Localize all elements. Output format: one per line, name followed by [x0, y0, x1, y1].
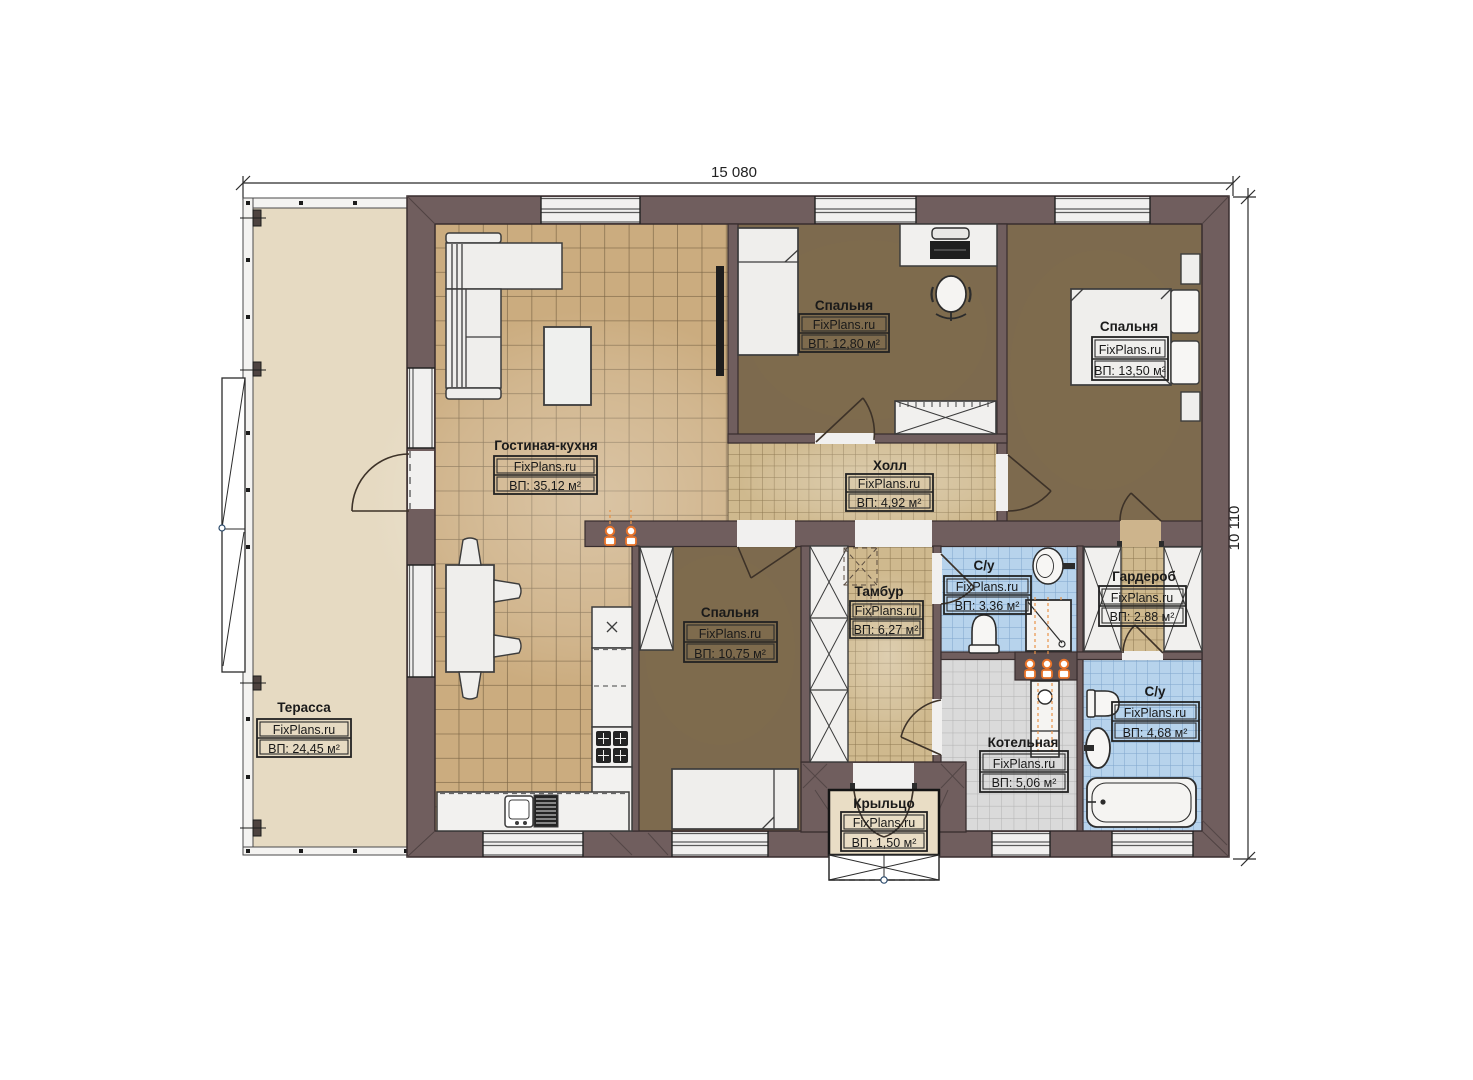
svg-text:ВП: 4,68 м²: ВП: 4,68 м² — [1123, 726, 1188, 740]
svg-text:FixPlans.ru: FixPlans.ru — [1124, 706, 1187, 720]
svg-text:FixPlans.ru: FixPlans.ru — [855, 604, 918, 618]
svg-text:FixPlans.ru: FixPlans.ru — [956, 580, 1019, 594]
svg-text:15 080: 15 080 — [711, 164, 757, 181]
svg-text:FixPlans.ru: FixPlans.ru — [699, 627, 762, 641]
svg-text:Спальня: Спальня — [701, 605, 759, 620]
svg-text:FixPlans.ru: FixPlans.ru — [273, 723, 336, 737]
svg-text:Спальня: Спальня — [1100, 319, 1158, 334]
svg-text:FixPlans.ru: FixPlans.ru — [1111, 591, 1174, 605]
svg-text:ВП: 13,50 м²: ВП: 13,50 м² — [1094, 364, 1166, 378]
svg-text:FixPlans.ru: FixPlans.ru — [514, 460, 577, 474]
svg-text:FixPlans.ru: FixPlans.ru — [858, 477, 921, 491]
svg-text:ВП: 5,06 м²: ВП: 5,06 м² — [992, 776, 1057, 790]
svg-text:Котельная: Котельная — [988, 735, 1059, 750]
svg-text:Тамбур: Тамбур — [855, 584, 904, 599]
svg-text:ВП: 12,80 м²: ВП: 12,80 м² — [808, 337, 880, 351]
svg-text:ВП: 2,88 м²: ВП: 2,88 м² — [1110, 610, 1175, 624]
svg-text:ВП: 3,36 м²: ВП: 3,36 м² — [955, 599, 1020, 613]
svg-text:Терасса: Терасса — [277, 700, 331, 715]
svg-text:FixPlans.ru: FixPlans.ru — [853, 816, 916, 830]
svg-text:С/у: С/у — [973, 558, 995, 573]
svg-text:FixPlans.ru: FixPlans.ru — [813, 318, 876, 332]
svg-text:ВП: 10,75 м²: ВП: 10,75 м² — [694, 647, 766, 661]
svg-text:ВП: 35,12 м²: ВП: 35,12 м² — [509, 479, 581, 493]
svg-text:Спальня: Спальня — [815, 298, 873, 313]
svg-text:ВП: 24,45 м²: ВП: 24,45 м² — [268, 742, 340, 756]
svg-text:Гардероб: Гардероб — [1112, 569, 1176, 584]
svg-text:ВП: 6,27 м²: ВП: 6,27 м² — [854, 623, 919, 637]
svg-text:FixPlans.ru: FixPlans.ru — [1099, 343, 1162, 357]
svg-text:С/у: С/у — [1144, 684, 1166, 699]
svg-text:Холл: Холл — [873, 458, 907, 473]
svg-text:FixPlans.ru: FixPlans.ru — [993, 757, 1056, 771]
svg-text:ВП: 4,92 м²: ВП: 4,92 м² — [857, 496, 922, 510]
svg-text:ВП: 1,50 м²: ВП: 1,50 м² — [852, 836, 917, 850]
svg-text:Гостиная-кухня: Гостиная-кухня — [494, 438, 597, 453]
svg-text:Крыльцо: Крыльцо — [853, 796, 914, 811]
